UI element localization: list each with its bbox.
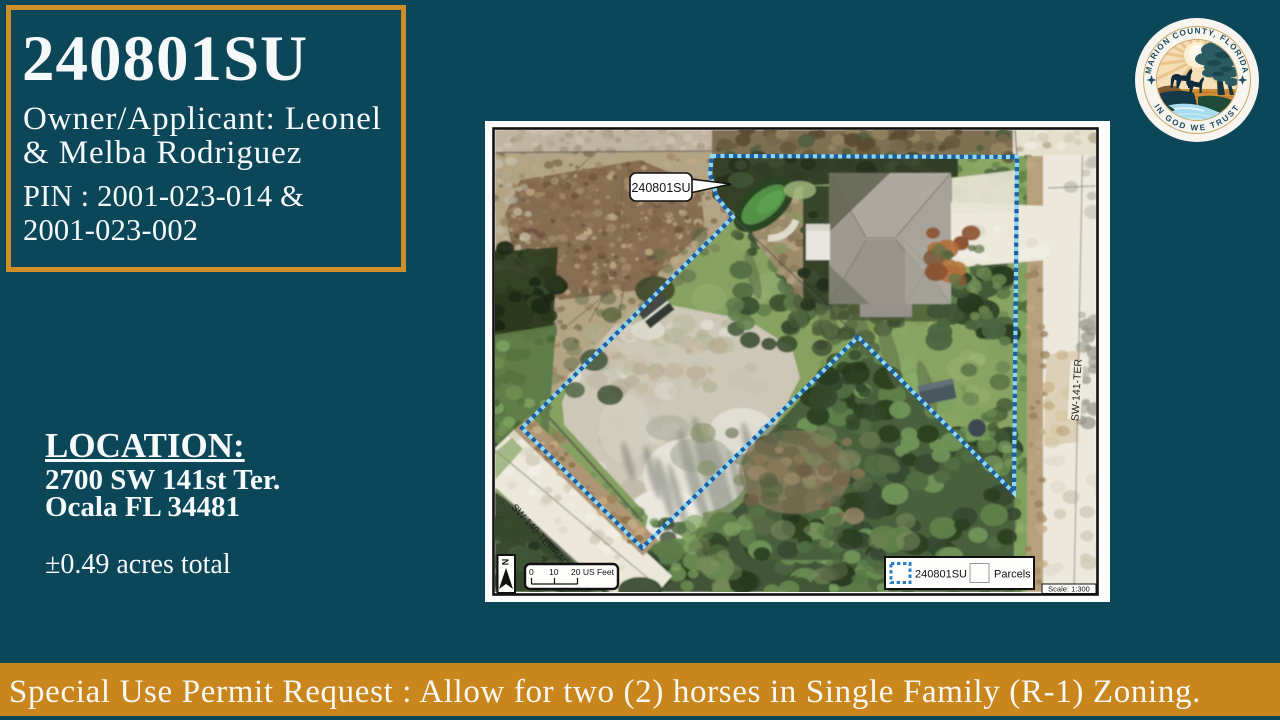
svg-text:10: 10 <box>549 567 559 577</box>
svg-text:Parcels: Parcels <box>994 569 1031 581</box>
svg-text:240801SU: 240801SU <box>631 181 690 195</box>
svg-text:240801SU: 240801SU <box>915 569 967 581</box>
svg-text:N: N <box>500 559 510 566</box>
svg-text:0: 0 <box>529 567 534 577</box>
svg-text:20 US Feet: 20 US Feet <box>571 567 615 577</box>
svg-text:Scale: 1:300: Scale: 1:300 <box>1048 585 1090 594</box>
